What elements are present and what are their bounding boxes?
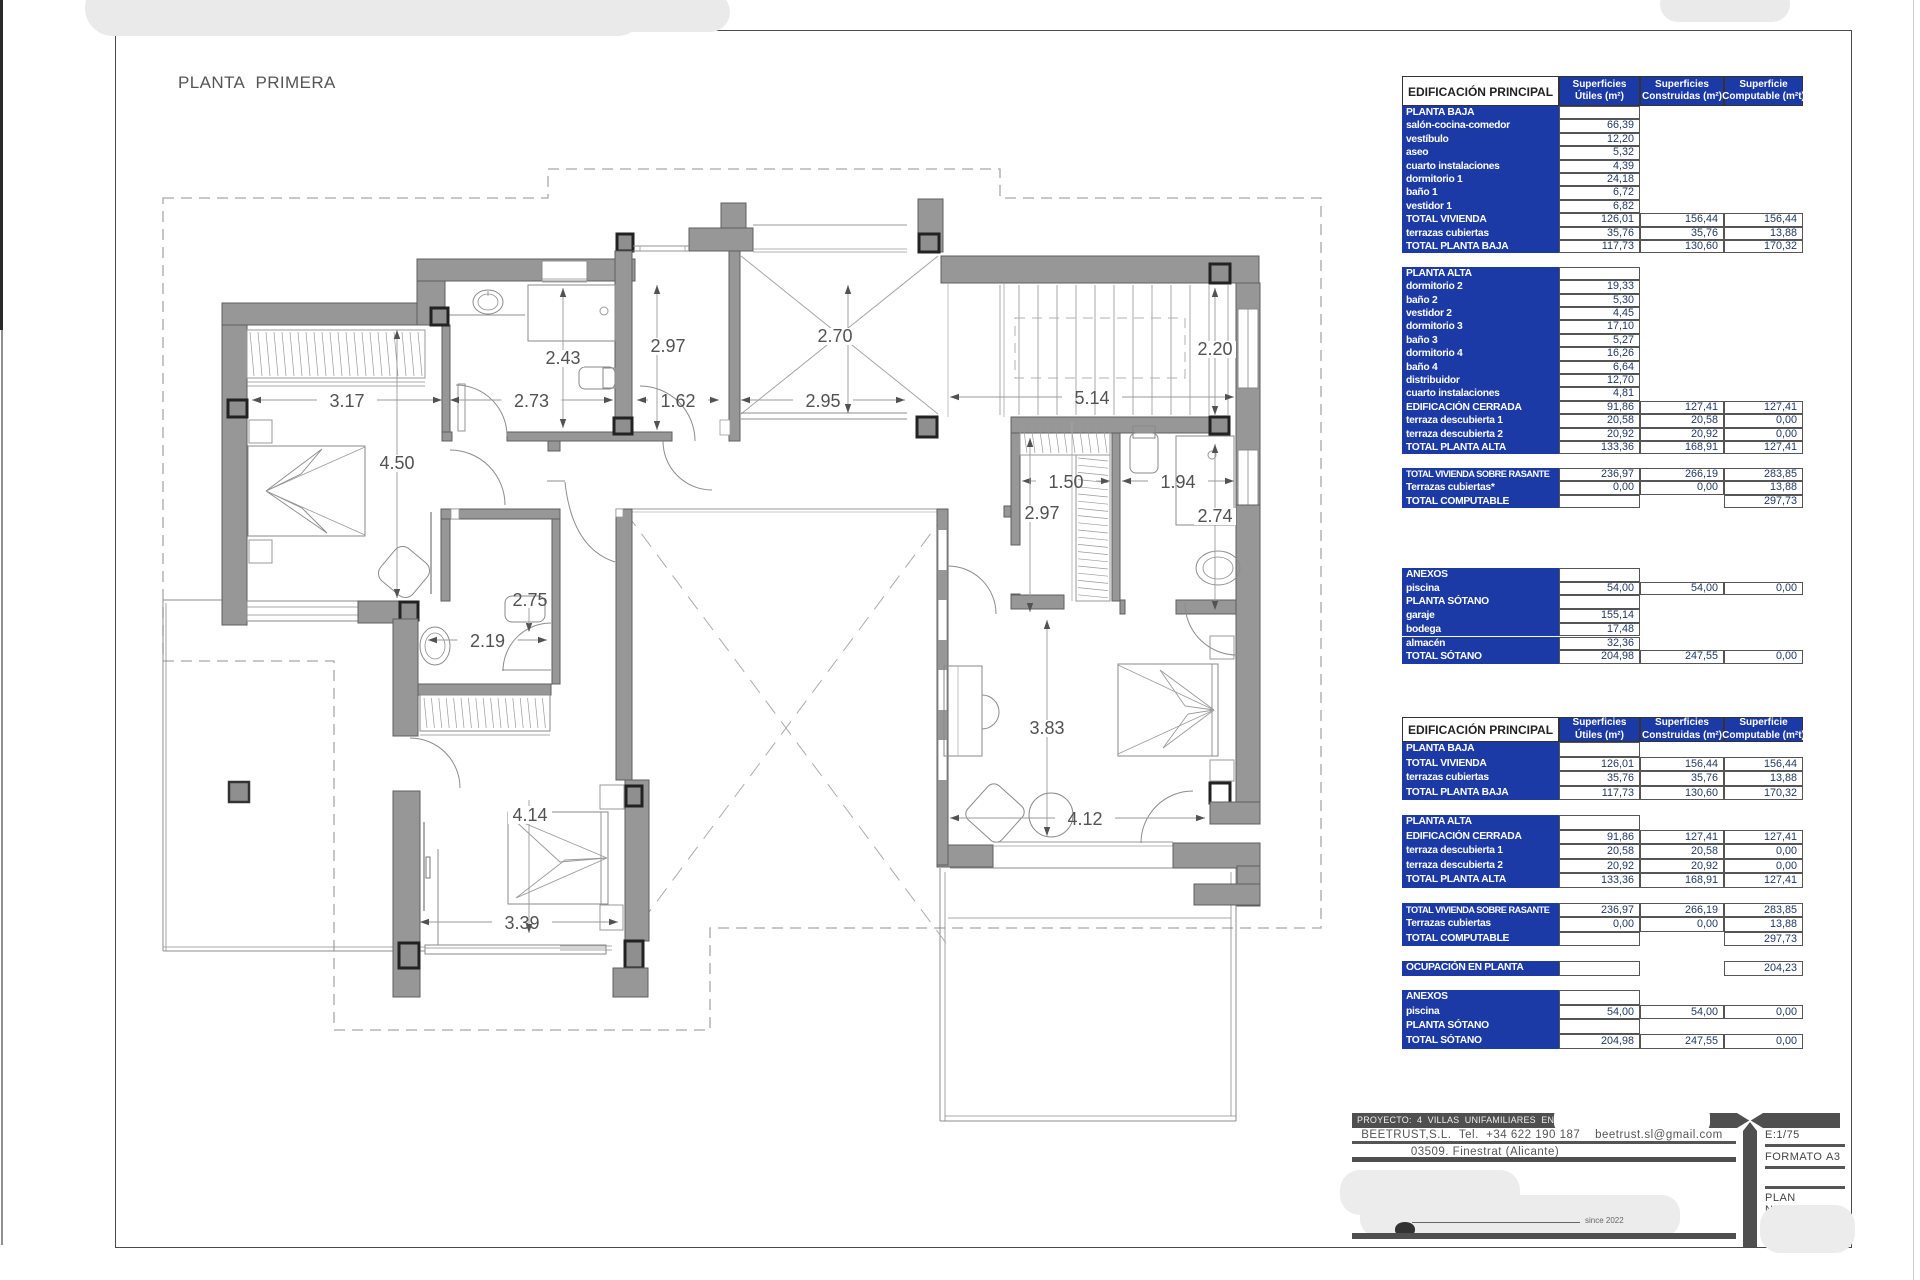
svg-text:2.20: 2.20 <box>1197 339 1232 359</box>
svg-text:3.17: 3.17 <box>329 391 364 411</box>
svg-text:2.70: 2.70 <box>817 326 852 346</box>
svg-text:4.50: 4.50 <box>379 453 414 473</box>
svg-text:2.97: 2.97 <box>1024 503 1059 523</box>
svg-text:2.19: 2.19 <box>470 631 505 651</box>
svg-text:3.83: 3.83 <box>1029 718 1064 738</box>
svg-text:3.39: 3.39 <box>504 913 539 933</box>
svg-text:2.97: 2.97 <box>650 336 685 356</box>
svg-text:1.62: 1.62 <box>660 391 695 411</box>
svg-text:2.75: 2.75 <box>512 590 547 610</box>
svg-text:5.14: 5.14 <box>1074 388 1109 408</box>
svg-text:1.94: 1.94 <box>1160 472 1195 492</box>
svg-text:2.74: 2.74 <box>1197 506 1232 526</box>
svg-text:2.95: 2.95 <box>805 391 840 411</box>
svg-text:4.14: 4.14 <box>512 805 547 825</box>
svg-text:2.73: 2.73 <box>514 391 549 411</box>
svg-text:4.12: 4.12 <box>1067 809 1102 829</box>
svg-text:1.50: 1.50 <box>1048 472 1083 492</box>
svg-text:2.43: 2.43 <box>545 348 580 368</box>
